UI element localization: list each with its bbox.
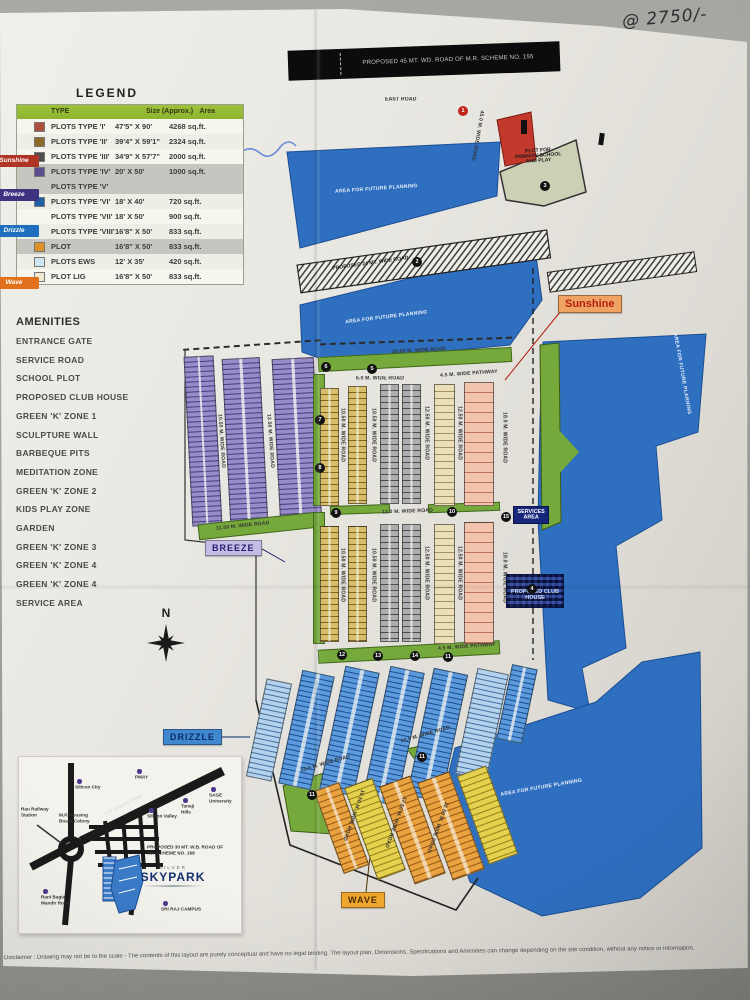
map-label: 12.50 M. WIDE ROAD [457,546,463,610]
legend-row: PLOT 16'8" X 50' 833 sq.ft. [17,239,243,254]
legend-plot-type: PLOTS TYPE 'VI' [51,197,115,206]
legend-plot-area: 833 sq.ft. [169,272,215,281]
sunshine-plot-column [320,388,339,506]
location-map-label: Silicon Valley [147,814,182,821]
legend-plot-area: 833 sq.ft. [169,227,215,236]
legend-plot-type: PLOTS TYPE 'V' [51,182,115,191]
zone-callout: Sunshine [558,295,622,313]
place-dot-icon [211,787,216,792]
numbered-marker: 2 [417,262,422,267]
legend-plot-size: 47'5" X 90' [115,122,169,131]
logo-tagline-rule [143,885,203,887]
legend-plot-type: PLOT LIG [51,272,115,281]
legend-row: PLOTS TYPE 'III' 34'9" X 57'7" 2000 sq.f… [17,149,243,164]
legend-col-size: Size (Approx.) [146,105,199,119]
numbered-marker: 12 [342,655,347,660]
place-dot-icon [163,901,168,906]
legend-table: TYPE Size (Approx.) Area PLOTS TYPE 'I' … [16,104,244,285]
legend-plot-type: PLOTS TYPE 'VIII' [51,227,115,236]
legend-plot-type: PLOTS TYPE 'IV' [51,167,115,176]
legend-plot-area: 4268 sq.ft. [169,122,215,131]
legend-plot-area: 900 sq.ft. [169,212,215,221]
amenity-item: KIDS PLAY ZONE [16,500,196,519]
map-label: 18.0 M. WIDE ROAD [502,412,508,472]
legend-row: PLOTS TYPE 'VIII' 16'8" X 50' 833 sq.ft. [17,224,243,239]
numbered-marker: 5 [372,369,377,374]
location-map-label: SAGE University [209,793,236,807]
legend-row: PLOTS TYPE 'I' 47'5" X 90' 4268 sq.ft. [17,119,243,134]
legend-plot-area: 833 sq.ft. [169,242,215,251]
amenity-item: BARBEQUE PITS [16,444,196,463]
map-label: 10.50 M. WIDE ROAD [371,548,377,612]
legend-plot-area: 2000 sq.ft. [169,152,215,161]
map-label: SERVICES AREA [511,505,551,525]
place-dot-icon [77,779,82,784]
place-dot-icon [183,798,188,803]
legend-rows: PLOTS TYPE 'I' 47'5" X 90' 4268 sq.ft. P… [17,119,243,284]
legend-plot-type: PLOT [51,242,115,251]
map-label: 10.50 M. WIDE ROAD [340,548,346,612]
numbered-marker: 9 [336,513,341,518]
amenity-item: SCHOOL PLOT [16,369,196,388]
numbered-marker: 14 [415,656,420,661]
map-label: 6.0 M. WIDE ROAD [356,376,413,382]
map-label: 12.50 M. WIDE ROAD [457,406,463,470]
amenity-item: SCULPTURE WALL [16,426,196,445]
location-map-label: Rau Railway Station [21,807,53,821]
legend-plot-size: 18' X 40' [115,197,169,206]
sunshine-plot-column [380,384,399,504]
location-map-label: Silicon City [75,785,105,792]
zone-callout: WAVE [341,892,385,908]
location-map-label: Rani Bagia Mandir Road [41,895,74,909]
legend-title: LEGEND [76,86,244,100]
location-map-label: PROPOSED 30 MT. W.B. ROAD OF RW SCHEME N… [147,845,237,859]
legend-plot-size: 12' X 35' [115,257,169,266]
legend-plot-type: PLOTS TYPE 'VII' [51,212,115,221]
sunshine-plot-column [402,384,421,504]
amenity-item: MEDITATION ZONE [16,463,196,482]
legend-plot-size: 16'8" X 50' [115,272,169,281]
sunshine-plot-column [348,386,367,504]
road-mark [521,120,527,134]
numbered-marker: 10 [452,512,457,517]
paper-fold [313,10,321,970]
legend-plot-type: PLOTS TYPE 'II' [51,137,115,146]
amenity-item: GARDEN [16,519,196,538]
legend-swatch [34,167,45,177]
zone-callout: BREEZE [205,540,262,556]
legend-swatch [34,137,45,147]
legend-row: PLOTS TYPE 'VII' 18' X 50' 900 sq.ft. [17,209,243,224]
legend-plot-size: 16'8" X 50' [115,242,169,251]
legend-row: PLOTS TYPE 'VI' 18' X 40' 720 sq.ft. [17,194,243,209]
legend-plot-size: 20' X 50' [115,167,169,176]
numbered-marker: 3 [545,186,550,191]
sunshine-plot-column [380,524,399,642]
map-label: 12.50 M. WIDE ROAD [424,546,430,610]
numbered-marker: 13 [378,656,383,661]
legend-swatch [34,122,45,132]
legend-row: PLOTS TYPE 'IV' 20' X 50' 1000 sq.ft. [17,164,243,179]
amenity-item: PROPOSED CLUB HOUSE [16,388,196,407]
hatched-proposed-road-east [547,252,696,292]
numbered-marker: 15 [506,517,511,522]
legend-col-area: Area [199,105,243,119]
map-label: 12.50 M. WIDE ROAD [424,406,430,470]
location-map-label: M.P. Housing Board Colony [59,813,95,827]
place-dot-icon [43,889,48,894]
amenities-panel: AMENITIES ENTRANCE GATESERVICE ROADSCHOO… [16,316,196,613]
legend-row: PLOT LIG 16'8" X 50' 833 sq.ft. [17,269,243,284]
legend-zone-tag: Wave [0,277,39,289]
amenity-item: GREEN 'K' ZONE 1 [16,407,196,426]
numbered-marker: 6 [326,367,331,372]
place-dot-icon [137,769,142,774]
location-map: Silicon CityPMAYSilicon ValleyTanaji Hil… [18,756,242,934]
legend-header-row: TYPE Size (Approx.) Area [17,105,243,119]
compass-star [147,624,185,662]
amenity-item: ENTRANCE GATE [16,332,196,351]
legend-row: PLOTS TYPE 'II' 39'4" X 59'1" 2324 sq.ft… [17,134,243,149]
amenity-item: GREEN 'K' ZONE 4 [16,556,196,575]
legend-plot-area: 2324 sq.ft. [169,137,215,146]
location-map-label: SRI RAJ CAMPUS [161,907,208,914]
legend-plot-type: PLOTS TYPE 'I' [51,122,115,131]
location-map-label: Tanaji Hills [181,804,197,818]
numbered-marker: 1 [463,111,468,116]
legend-plot-size: 39'4" X 59'1" [115,137,169,146]
legend-plot-area: 1000 sq.ft. [169,167,215,176]
legend-panel: LEGEND TYPE Size (Approx.) Area PLOTS TY… [16,86,244,285]
legend-swatch [34,257,45,267]
logo-text: SKYPARK [131,870,215,884]
sunshine-plot-column [402,524,421,642]
sunshine-plot-column [464,382,494,506]
legend-plot-area: 420 sq.ft. [169,257,215,266]
skypark-logo: SILVER SKYPARK [131,865,215,887]
legend-zone-tag: Sunshine [0,155,39,167]
numbered-marker: 11 [448,657,453,662]
place-dot-icon [149,808,154,813]
amenity-item: GREEN 'K' ZONE 3 [16,538,196,557]
legend-plot-type: PLOTS EWS [51,257,115,266]
paper-fold [0,584,750,590]
legend-zone-tag: Drizzle [0,225,39,237]
green-strip-right [540,343,561,530]
legend-swatch [34,242,45,252]
legend-plot-size: 16'8" X 50' [115,227,169,236]
amenities-list: ENTRANCE GATESERVICE ROADSCHOOL PLOTPROP… [16,332,196,613]
legend-plot-size: 34'9" X 57'7" [115,152,169,161]
amenity-item: SERVICE ROAD [16,351,196,370]
legend-plot-area: 720 sq.ft. [169,197,215,206]
location-map-label: PMAY [135,775,150,782]
numbered-marker: 11 [422,757,427,762]
legend-zone-tag: Breeze [0,189,39,201]
legend-plot-size: 18' X 50' [115,212,169,221]
legend-plot-type: PLOTS TYPE 'III' [51,152,115,161]
amenities-title: AMENITIES [16,316,196,328]
amenity-item: SERVICE AREA [16,594,196,613]
map-label: EAST ROAD [385,97,422,103]
zone-callout: DRIZZLE [163,729,222,745]
amenity-item: GREEN 'K' ZONE 2 [16,482,196,501]
sunshine-plot-column [464,522,494,644]
road-mark [598,133,605,146]
photographed-layout-plan: @ 2750/- [0,0,750,1000]
map-label: 10.50 M. WIDE ROAD [371,408,377,472]
legend-col-type: TYPE [17,105,146,119]
legend-row: PLOTS TYPE 'V' [17,179,243,194]
legend-row: PLOTS EWS 12' X 35' 420 sq.ft. [17,254,243,269]
sunshine-plot-column [434,384,455,506]
map-label: 10.50 M. WIDE ROAD [340,408,346,472]
